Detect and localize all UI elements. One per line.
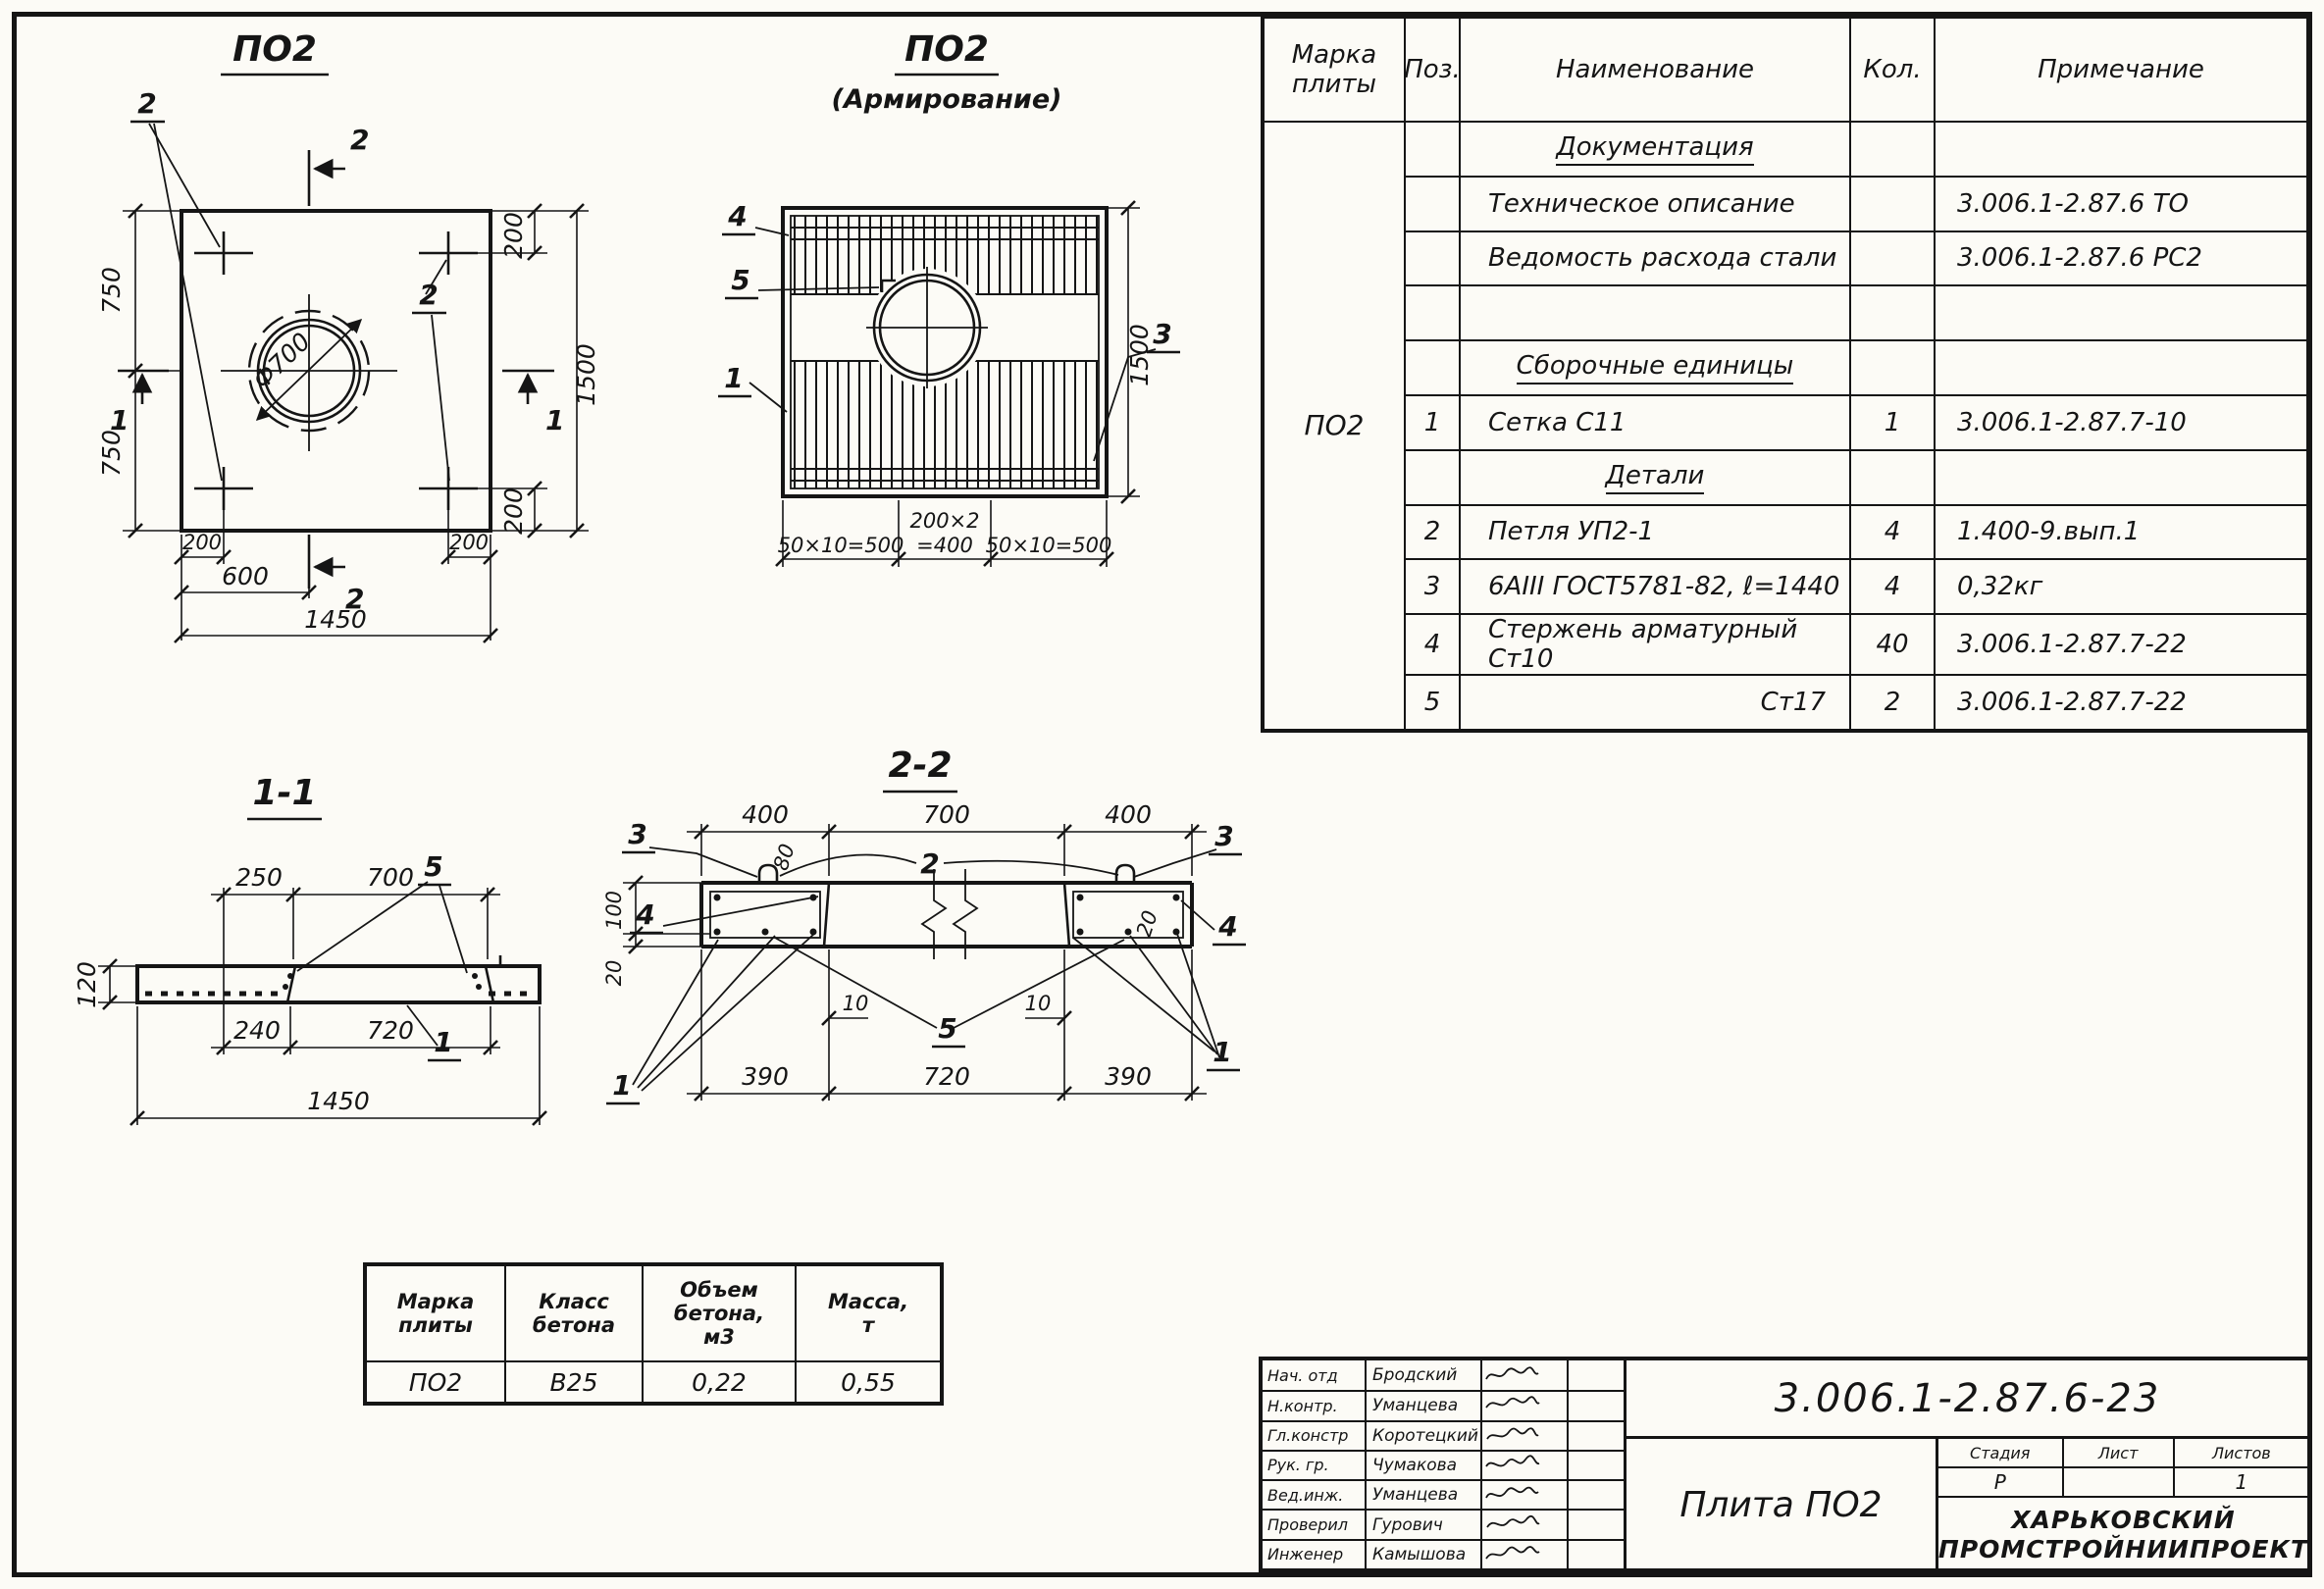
signature-scribble xyxy=(1480,1360,1567,1390)
signature-scribble xyxy=(1480,1422,1567,1450)
dim-750-top: 750 xyxy=(97,267,126,314)
mat-value-mark: ПО2 xyxy=(367,1360,504,1402)
sheets-label: Листов xyxy=(2173,1439,2308,1468)
sec11-dim-250: 250 xyxy=(235,863,283,892)
spec-qty: 40 xyxy=(1849,613,1934,674)
organization-line2: ПРОМСТРОЙНИИПРОЕКТ xyxy=(1938,1535,2308,1564)
sheet-value xyxy=(2062,1468,2173,1498)
signature-date-cell xyxy=(1567,1541,1624,1568)
spec-note: 3.006.1-2.87.6 РС2 xyxy=(1934,231,2306,285)
spec-name xyxy=(1459,284,1849,339)
reinf-mark-3: 3 xyxy=(1153,318,1171,350)
dim-750-bottom: 750 xyxy=(97,430,126,477)
plan-title: ПО2 xyxy=(232,29,317,70)
spec-pos xyxy=(1404,231,1459,285)
reinf-dim-right: 50×10=500 xyxy=(986,534,1112,557)
spec-note xyxy=(1934,449,2306,504)
sec22-mark-4-right: 4 xyxy=(1217,910,1237,943)
signature-row: Рук. гр. Чумакова xyxy=(1263,1450,1624,1479)
sec22-mark-4-left: 4 xyxy=(635,898,654,931)
spec-qty: 2 xyxy=(1849,674,1934,729)
loop-mark-right: 2 xyxy=(419,279,438,311)
signature-scribble xyxy=(1480,1541,1567,1568)
signature-scribble xyxy=(1480,1511,1567,1538)
spec-note: 3.006.1-2.87.7-10 xyxy=(1934,394,2306,449)
spec-header-note: Примечание xyxy=(1934,19,2306,121)
signature-name: Уманцева xyxy=(1365,1392,1480,1419)
signature-row: Нач. отд Бродский xyxy=(1263,1360,1624,1390)
reinf-mark-5: 5 xyxy=(731,264,749,296)
sec22-dim-390l: 390 xyxy=(742,1062,789,1091)
signature-name: Гурович xyxy=(1365,1511,1480,1538)
section-2-2: 2-2 3 4 xyxy=(602,745,1246,1103)
spec-header-qty: Кол. xyxy=(1849,19,1934,121)
spec-pos: 2 xyxy=(1404,504,1459,559)
mat-header-mark: Марка плиты xyxy=(367,1266,504,1360)
spec-qty: 4 xyxy=(1849,504,1934,559)
spec-mark-value: ПО2 xyxy=(1265,121,1404,729)
mat-header-mass: Масса, т xyxy=(795,1266,940,1360)
signature-scribble xyxy=(1480,1392,1567,1419)
mat-value-mass: 0,55 xyxy=(795,1360,940,1402)
sec11-mark-1: 1 xyxy=(434,1026,452,1058)
spec-qty xyxy=(1849,339,1934,394)
sec22-mark-3-left: 3 xyxy=(628,818,646,850)
signature-scribble xyxy=(1480,1452,1567,1479)
loop-hook-right xyxy=(1116,865,1134,883)
spec-name: Ст17 xyxy=(1459,674,1849,729)
organization-line1: ХАРЬКОВСКИЙ xyxy=(2011,1506,2235,1535)
spec-qty: 4 xyxy=(1849,558,1934,613)
organization-name: ХАРЬКОВСКИЙ ПРОМСТРОЙНИИПРОЕКТ xyxy=(1938,1498,2308,1571)
signature-row: Инженер Камышова xyxy=(1263,1539,1624,1568)
spec-pos xyxy=(1404,339,1459,394)
sec22-mark-1-left: 1 xyxy=(612,1069,631,1102)
spec-qty: 1 xyxy=(1849,394,1934,449)
signature-date-cell xyxy=(1567,1392,1624,1419)
sec11-dim-240: 240 xyxy=(233,1016,281,1045)
mat-value-class: В25 xyxy=(504,1360,642,1402)
sec22-dim-400l: 400 xyxy=(742,800,789,829)
signature-date-cell xyxy=(1567,1511,1624,1538)
sec11-mark-5: 5 xyxy=(424,850,442,883)
sec22-dim-80: 80 xyxy=(769,841,800,873)
sec11-dim-720: 720 xyxy=(367,1016,414,1045)
sec22-mark-3-right: 3 xyxy=(1214,820,1233,852)
signature-role: Проверил xyxy=(1263,1511,1365,1538)
spec-pos xyxy=(1404,176,1459,231)
spec-note: 0,32кг xyxy=(1934,558,2306,613)
drawing-sheet: ПО2 Ф700 2 2 xyxy=(0,0,2324,1589)
signature-scribble xyxy=(1480,1481,1567,1509)
signature-name: Бродский xyxy=(1365,1360,1480,1390)
loop-mark-left: 2 xyxy=(137,87,156,120)
spec-note: 3.006.1-2.87.7-22 xyxy=(1934,613,2306,674)
spec-note: 3.006.1-2.87.6 ТО xyxy=(1934,176,2306,231)
material-table: Марка плиты Класс бетона Объем бетона, м… xyxy=(363,1262,944,1406)
plan-view: ПО2 Ф700 2 2 xyxy=(97,29,600,642)
spec-name: Техническое описание xyxy=(1459,176,1849,231)
sec22-outline xyxy=(701,865,1192,959)
signature-role: Нач. отд xyxy=(1263,1360,1365,1390)
sec22-dim-700: 700 xyxy=(923,800,970,829)
signature-name: Коротецкий xyxy=(1365,1422,1480,1450)
spec-pos: 1 xyxy=(1404,394,1459,449)
sec11-title: 1-1 xyxy=(252,773,316,813)
spec-note xyxy=(1934,121,2306,176)
sec22-dim-720: 720 xyxy=(923,1062,970,1091)
spec-note xyxy=(1934,339,2306,394)
dim-200-bottom-right: 200 xyxy=(499,487,528,535)
spec-section-header: Сборочные единицы xyxy=(1459,339,1849,394)
spec-pos xyxy=(1404,284,1459,339)
signature-date-cell xyxy=(1567,1452,1624,1479)
plan-section-marks: 2 2 1 1 xyxy=(110,124,564,615)
spec-qty xyxy=(1849,231,1934,285)
reinf-dim-left: 50×10=500 xyxy=(778,534,904,557)
sec22-dimensions: 400 700 400 100 20 80 20 10 10 390 720 3… xyxy=(602,800,1207,1101)
plan-leaders: 2 2 xyxy=(130,87,449,481)
signature-date-cell xyxy=(1567,1481,1624,1509)
reinf-dim-center-2: =400 xyxy=(916,534,973,557)
spec-note: 3.006.1-2.87.7-22 xyxy=(1934,674,2306,729)
signature-role: Гл.констр xyxy=(1263,1422,1365,1450)
sheets-value: 1 xyxy=(2173,1468,2308,1498)
signature-row: Гл.констр Коротецкий xyxy=(1263,1420,1624,1450)
signature-role: Рук. гр. xyxy=(1263,1452,1365,1479)
sec22-dim-cover-20: 20 xyxy=(1132,907,1162,940)
spec-pos xyxy=(1404,449,1459,504)
signature-date-cell xyxy=(1567,1360,1624,1390)
signature-row: Н.контр. Уманцева xyxy=(1263,1390,1624,1419)
dim-1450: 1450 xyxy=(304,605,367,634)
sec22-dim-100: 100 xyxy=(602,891,626,930)
sec11-dim-1450: 1450 xyxy=(307,1087,370,1115)
spec-pos: 5 xyxy=(1404,674,1459,729)
dim-600: 600 xyxy=(222,562,269,590)
drawing-title: Плита ПО2 xyxy=(1627,1439,1938,1571)
spec-pos: 4 xyxy=(1404,613,1459,674)
spec-section-header: Детали xyxy=(1459,449,1849,504)
spec-qty xyxy=(1849,449,1934,504)
sheet-label: Лист xyxy=(2062,1439,2173,1468)
spec-header-name: Наименование xyxy=(1459,19,1849,121)
stage-value: Р xyxy=(1938,1468,2062,1498)
signature-row: Вед.инж. Уманцева xyxy=(1263,1479,1624,1509)
mat-value-volume: 0,22 xyxy=(642,1360,795,1402)
spec-name: Стержень арматурный Ст10 xyxy=(1459,613,1849,674)
sec22-dim-390r: 390 xyxy=(1105,1062,1152,1091)
dim-200-top-right: 200 xyxy=(499,212,528,259)
mat-header-volume: Объем бетона, м3 xyxy=(642,1266,795,1360)
spec-name: 6АIII ГОСТ5781-82, ℓ=1440 xyxy=(1459,558,1849,613)
mat-header-class: Класс бетона xyxy=(504,1266,642,1360)
specification-table: Марка плиты Поз. Наименование Кол. Приме… xyxy=(1261,15,2310,733)
spec-pos xyxy=(1404,121,1459,176)
reinforcement-view: ПО2 (Армирование) 4 5 xyxy=(718,29,1180,567)
signature-name: Чумакова xyxy=(1365,1452,1480,1479)
spec-name: Ведомость расхода стали xyxy=(1459,231,1849,285)
dim-1500: 1500 xyxy=(572,343,600,406)
reinf-dim-1500: 1500 xyxy=(1125,324,1154,386)
spec-qty xyxy=(1849,284,1934,339)
sec22-dim-400r: 400 xyxy=(1105,800,1152,829)
section-1-1: 1-1 5 1 xyxy=(73,773,546,1125)
spec-note: 1.400-9.вып.1 xyxy=(1934,504,2306,559)
document-number: 3.006.1-2.87.6-23 xyxy=(1627,1360,2308,1439)
cut-mark-2-top: 2 xyxy=(350,124,369,156)
spec-section-header: Документация xyxy=(1459,121,1849,176)
spec-header-mark: Марка плиты xyxy=(1265,19,1404,121)
spec-note xyxy=(1934,284,2306,339)
title-block: Нач. отд Бродский Н.контр. Уманцева Гл.к… xyxy=(1259,1357,2312,1572)
spec-qty xyxy=(1849,176,1934,231)
reinf-mark-1: 1 xyxy=(724,362,743,394)
sec22-dim-10r: 10 xyxy=(1025,992,1052,1015)
sec22-dim-20: 20 xyxy=(602,960,626,987)
stage-label: Стадия xyxy=(1938,1439,2062,1468)
stage-sheet-table: Стадия Лист Листов Р 1 xyxy=(1938,1439,2308,1498)
signature-table: Нач. отд Бродский Н.контр. Уманцева Гл.к… xyxy=(1263,1360,1624,1568)
spec-name: Петля УП2-1 xyxy=(1459,504,1849,559)
hole-diameter-label: Ф700 xyxy=(247,327,316,394)
plan-dimensions: 750 750 200 200 1500 200 200 xyxy=(97,204,600,642)
title-block-right: 3.006.1-2.87.6-23 Плита ПО2 Стадия Лист … xyxy=(1624,1360,2308,1568)
cut-mark-1-right: 1 xyxy=(545,404,564,436)
spec-name: Сетка С11 xyxy=(1459,394,1849,449)
signature-date-cell xyxy=(1567,1422,1624,1450)
reinf-subtitle: (Армирование) xyxy=(832,84,1062,115)
spec-qty xyxy=(1849,121,1934,176)
sec22-dim-10l: 10 xyxy=(843,992,869,1015)
reinf-mark-4: 4 xyxy=(727,200,747,232)
plan-outline: Ф700 xyxy=(181,211,491,531)
signature-name: Камышова xyxy=(1365,1541,1480,1568)
sec11-dimensions: 250 700 120 240 720 1450 xyxy=(73,863,546,1125)
signature-row: Проверил Гурович xyxy=(1263,1509,1624,1538)
sec22-mark-2: 2 xyxy=(920,847,939,880)
dim-200-bottom-right2: 200 xyxy=(449,531,489,554)
signature-name: Уманцева xyxy=(1365,1481,1480,1509)
sec11-dim-120: 120 xyxy=(73,961,101,1008)
signature-role: Н.контр. xyxy=(1263,1392,1365,1419)
spec-pos: 3 xyxy=(1404,558,1459,613)
sec11-outline xyxy=(137,955,540,1002)
sec11-dim-700: 700 xyxy=(367,863,414,892)
sec22-title: 2-2 xyxy=(888,745,952,786)
reinf-title: ПО2 xyxy=(904,29,989,70)
signature-role: Инженер xyxy=(1263,1541,1365,1568)
dim-200-bottom-left: 200 xyxy=(182,531,222,554)
reinf-dim-center-1: 200×2 xyxy=(909,509,979,533)
signature-role: Вед.инж. xyxy=(1263,1481,1365,1509)
reinf-outline xyxy=(783,208,1107,496)
spec-header-pos: Поз. xyxy=(1404,19,1459,121)
